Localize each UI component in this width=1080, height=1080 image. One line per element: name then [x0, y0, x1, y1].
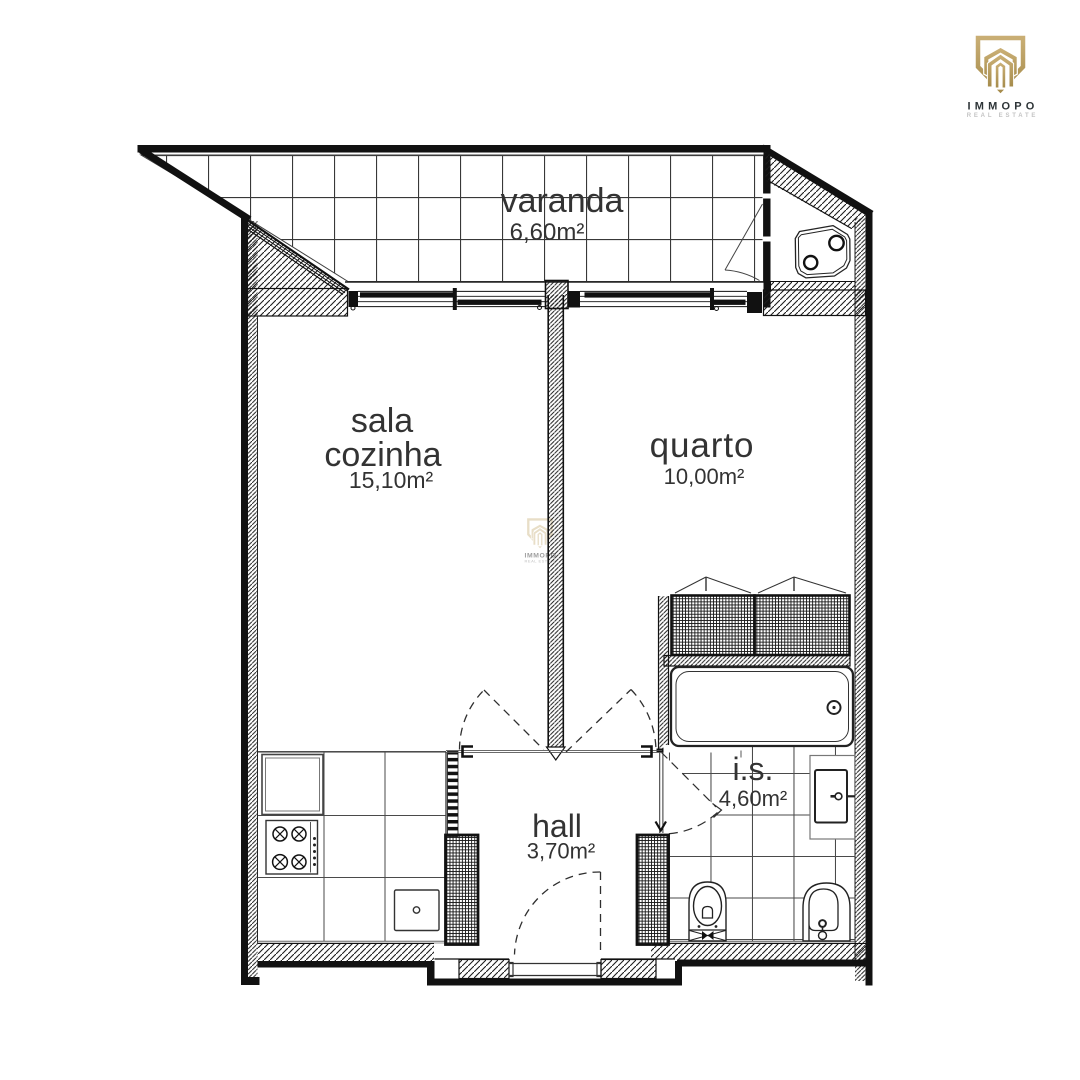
svg-text:i.s.: i.s.: [733, 751, 774, 787]
svg-text:15,10m²: 15,10m²: [349, 467, 434, 493]
svg-text:10,00m²: 10,00m²: [664, 464, 745, 489]
svg-text:REAL ESTATE: REAL ESTATE: [967, 113, 1038, 119]
svg-text:sala: sala: [351, 402, 413, 440]
svg-text:6,60m²: 6,60m²: [510, 219, 585, 246]
svg-text:varanda: varanda: [501, 182, 624, 220]
svg-text:IMMOPO: IMMOPO: [967, 101, 1038, 113]
svg-text:3,70m²: 3,70m²: [527, 839, 595, 864]
svg-text:quarto: quarto: [650, 426, 755, 465]
svg-text:4,60m²: 4,60m²: [719, 786, 787, 811]
